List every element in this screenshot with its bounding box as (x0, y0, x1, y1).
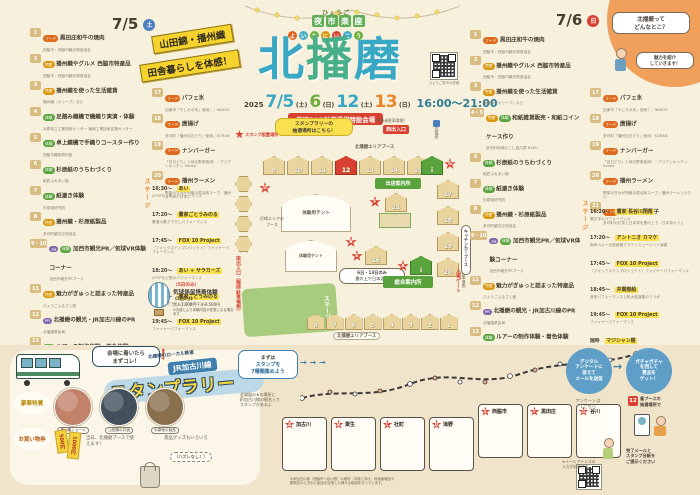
booth-list-item: 12 PR北播磨の観光・JR加古川線のPR 北播磨県民局 (470, 301, 582, 325)
category-badge: フード (603, 121, 618, 128)
prize-photos: 播州織ショール 山田錦のお酒 杉原紙の製品 (54, 388, 184, 434)
item-sub: 多可町観光交流協会 (43, 232, 148, 236)
booths-13-15: 131415 (359, 156, 429, 175)
prize-item: 播州織ショール (54, 388, 92, 434)
item-number: 18 (152, 114, 163, 123)
category-badge: フード (165, 121, 180, 128)
balloon-weather-note: ※天候により体験内容が変更になる場合あり (173, 308, 235, 317)
booth12-note-line: 抽選場所で (640, 402, 661, 408)
stage-row: 17:45～ FOX 10 Project （フォックステンプロジェクト）ファイ… (152, 227, 232, 255)
date-number: 7/5 (265, 92, 293, 112)
item-sub: 西脇市・西脇市観光物産協会 (483, 75, 582, 79)
experience-tent-2: 体験用テント (285, 240, 337, 272)
map-booth-tent: 4 (383, 314, 401, 330)
booth12-note: 12 番ブースの 抽選場所で (628, 396, 661, 408)
info-booth-tent-2: i (410, 256, 432, 275)
map-booth-tent: 10 (287, 156, 309, 175)
stage-row: 17:20～ アントニオ カマケ 南米ペルー伝統楽器でラテンミュージック演奏 (590, 224, 694, 247)
stamp-star-d: D (259, 182, 271, 194)
stamp-legend: スタンプ設置場所 (235, 130, 278, 139)
station-name: 滝野 (443, 421, 453, 428)
item-badges: フード (603, 141, 620, 160)
lottery-bubble: スタンプラリーの 抽選場所はこちら！ (275, 118, 353, 136)
item-sub: 西脇市・西脇市観光物産協会 (43, 48, 148, 52)
booth-21-tent: 21 (385, 193, 407, 212)
title-char: 北 (258, 32, 306, 86)
west-exit-label: 西出入口 (383, 125, 409, 134)
balloon-envelope (148, 282, 170, 308)
booth-list-item: 9・10 PR体験加西市観光PR／気球VR体験コーナー 加西市観光PRブース (30, 239, 148, 282)
category-badge: フード (603, 95, 618, 102)
item-sub: 播州織（オリーブ）など (483, 101, 582, 105)
stage-performer: あい + サラカーズ (177, 268, 222, 274)
category-badge: フード (483, 37, 498, 44)
item-badges: フード (165, 114, 182, 133)
item-badges: 体験 (43, 160, 56, 179)
venue-map: スタンプ設置場所 スタンプラリーの 抽選場所はこちら！ 北播磨エリアブース （関… (233, 118, 465, 348)
item-number: 4・5 (470, 108, 484, 117)
item-badges: フード (165, 141, 182, 160)
item-badges: PR (483, 301, 493, 320)
person-body (654, 426, 666, 436)
item-title: 黒田庄和牛の焼肉 (60, 35, 105, 41)
category-badge: フード (43, 35, 58, 42)
item-number: 7 (470, 179, 481, 188)
stage-performer: FOX 10 Project (615, 261, 659, 267)
item-sub: 加西市観光PRブース (489, 269, 582, 273)
mail-note-line: 入力が必要です (562, 465, 622, 470)
stage-time: 18:20～ (152, 269, 172, 274)
item-number: 2 (30, 54, 41, 63)
experience-tent-label: 体験用テント (299, 253, 323, 259)
brand-logo: 夜 市 楽 座 (312, 15, 365, 27)
item-badges: 特産 (483, 82, 496, 101)
experience-tent-label: 体験用テント (302, 210, 330, 216)
item-badges: フード (165, 88, 182, 107)
item-title: 播州ラーメン (620, 179, 653, 185)
item-title: 杉原紙のうちわづくり (56, 167, 112, 173)
stage-performer: あい (177, 186, 190, 192)
intro-question-line: 北播磨って (613, 15, 689, 23)
booth-list-item: 9・10 PR体験加西市観光PR／気球VR体験コーナー 加西市観光PRブース (470, 231, 582, 274)
date-dow: (日) (323, 100, 335, 109)
jr-support-note: ※JR加古川線（西脇市～谷川間）の維持・存続に向け、利用者増加や 駅周辺のにぎわ… (290, 477, 540, 486)
station-star-letter: C (383, 420, 393, 430)
charging-label: 充電所 (434, 127, 440, 139)
category-badge: PR (49, 246, 58, 252)
item-badges: フード (603, 114, 620, 133)
category-badge: 特産 (483, 89, 495, 96)
amagasaki-booth (235, 236, 252, 252)
stage-description: 書道の書き下ろしパフォーマンス (152, 220, 232, 224)
map-booth-tent: 9 (263, 156, 285, 175)
amagasaki-area-label: 尼崎エリアの ブース (255, 216, 289, 228)
train-wheel (24, 380, 30, 386)
category-badge: 体験 (499, 115, 511, 122)
booth-list-item: 12 PR北播磨の観光・JR加古川線のPR 北播磨県民局 (30, 310, 148, 334)
station-star-letter: B (334, 420, 344, 430)
item-title: 黒田庄和牛の焼肉 (500, 37, 545, 43)
item-badges: フード (603, 171, 620, 190)
map-booth-tent: 6 (345, 314, 363, 330)
station-name: 粟生 (345, 421, 355, 428)
category-badge: 特産 (43, 88, 55, 95)
step1-line: スタンプを (239, 361, 297, 368)
train-stripe (17, 372, 79, 376)
item-sub: 紙匠ふれあい館 (43, 179, 148, 183)
balloon-section: （5日のみ） 気球係留搭乗体験 《1回5分》 大人1,000円・小人500円 ※… (148, 282, 235, 317)
catch-banner-2: 田舎暮らしを体感！ (139, 49, 240, 82)
category-badge: 体験 (483, 334, 495, 341)
booth-list-item: 6 体験杉原紙のうちわづくり 紙匠ふれあい館 (30, 160, 148, 184)
map-booth-tent: 19 (437, 232, 459, 251)
coupon-label: お買い物券 (14, 428, 50, 450)
item-sub: 加東市「やしろの氷」使用！／INVIGO (603, 108, 694, 112)
item-number: 2 (470, 56, 481, 65)
map-booth-tent: 1 (440, 314, 458, 330)
qr-corner (578, 480, 586, 488)
booths-9-11: 91011 (263, 156, 333, 175)
item-number: 17 (590, 88, 601, 97)
map-booth-tent: 14 (383, 156, 405, 175)
tatami-mat (379, 213, 411, 228)
jr-note-line: 駅周辺のにぎわい創出を目指した様々な取組を行っています。 (290, 481, 540, 485)
category-badge: 体験 (43, 140, 55, 147)
stage-performer: 井関春絵 (615, 287, 638, 293)
flyer-page: ひょうご 夜 市 楽 座 よ い ち に い こ う 北播磨 ひょうご夜市の詳細… (0, 0, 700, 495)
item-sub: 加東市「やしろの氷」使用！／INVIGO (165, 108, 232, 112)
intro-answer-line: していきます！ (637, 61, 693, 67)
item-number: 6 (30, 160, 41, 169)
item-sub: 播州織（オリーブ）など (43, 100, 148, 104)
stage-time: 16:20～ (590, 210, 610, 215)
stage-description: 南米ペルー伝統楽器でラテンミュージック演奏 (590, 243, 694, 247)
step2-line: メールを送信 (575, 377, 603, 383)
map-booth-tent: 3 (402, 314, 420, 330)
booth-list-item: 8 特産播州織・杉原紙製品 多可町観光交流協会 (30, 212, 148, 236)
item-sub: 北播磨県民局 (43, 330, 148, 334)
final-instruction: 完了メールと スタンプ台紙を ご提示ください (626, 448, 694, 464)
stage-description: （フォックステンプロジェクト）ファイヤーパフォーマンス (152, 246, 232, 255)
stage-label-75: ステージ (142, 178, 151, 210)
item-title: ナンバーガー (182, 148, 216, 154)
stage-performer: アントニオ カマケ (615, 235, 659, 241)
intro-question-bubble: 北播磨って どんなとこ？ (612, 12, 690, 34)
item-number: 11 (470, 276, 481, 285)
item-badges: 体験 (483, 153, 496, 172)
item-title: 播州織やグルメ 西脇市特産品 (496, 63, 571, 69)
item-sub: 多可町「播州百日どり」使用／SORAN (165, 134, 232, 138)
item-sub: 「百日どり」と地元野菜使用！／アジアンキッチン Sanka (165, 160, 232, 169)
stage-row: 16:30～ あい J-POPなど歌のパフォーマンス (152, 175, 232, 198)
map-booth-tent: 8 (307, 314, 325, 330)
food-list-item: 17 フードパフェ氷 加東市「やしろの氷」使用！／INVIGO (152, 88, 232, 112)
stage-time: 17:20～ (152, 213, 172, 218)
item-number: 3 (470, 82, 481, 91)
category-badge: 特産 (43, 61, 55, 68)
item-badges: フード (603, 88, 620, 107)
step3-circle: ガチャガチャ を回して 賞品を ゲット！ (626, 348, 672, 394)
stage-row: 18:45～ 井関春絵 音楽パフォーマンスと和太鼓演奏のコラボ (590, 276, 694, 299)
item-number: 4 (30, 107, 41, 116)
booth-list-item: 1 フード黒田庄和牛の焼肉 西脇市・西脇市観光物産協会 (470, 30, 582, 54)
item-badges: フード (43, 28, 60, 47)
station-stamp-box: A 加古川 (282, 417, 327, 471)
prize-item: 杉原紙の製品 (146, 388, 184, 434)
train-body (16, 354, 80, 379)
stage-performer: 書家ごとうみのる (177, 212, 219, 218)
item-number: 8 (470, 205, 481, 214)
item-number: 5 (30, 133, 41, 142)
item-number: 18 (590, 114, 601, 123)
category-badge: フード (603, 148, 618, 155)
category-badge: 体験 (43, 193, 55, 200)
category-badge: 特産 (483, 283, 495, 290)
lottery-bubble-line: 抽選場所はこちら！ (276, 127, 352, 134)
category-badge: PR (483, 309, 492, 315)
booth-list-item: 2 特産播州織やグルメ 西脇市特産品 西脇市・西脇市観光物産協会 (470, 56, 582, 80)
person-head (604, 438, 614, 448)
date-number: 12 (336, 92, 359, 112)
station-stamp-box: G 谷川 (576, 404, 621, 458)
lottery-bubble-line: スタンプラリーの (276, 120, 352, 127)
item-title: ルアーの制作体験・着色体験 (496, 335, 568, 341)
category-badge: 体験 (60, 246, 72, 253)
stage-label-76: ステージ (580, 200, 589, 232)
guide-person-illustration (616, 48, 627, 71)
item-sub: 加西市観光PRブース (49, 277, 148, 281)
item-sub: 西脇市・西脇市観光物産協会 (483, 50, 582, 54)
station-stamp-box: D 滝野 (429, 417, 474, 471)
category-badge: 特産 (43, 219, 55, 226)
stage-time: 17:45～ (590, 262, 610, 267)
map-booth-tent: 7 (326, 314, 344, 330)
stage-performer: FOX 10 Project (177, 319, 221, 325)
item-sub: ひょうごふるさと館 (43, 304, 148, 308)
day-badge-76: 7/6 日 (556, 10, 599, 29)
qr-corner (432, 70, 440, 78)
legend-text: スタンプ設置場所 (245, 132, 278, 138)
grand-prize-label: 豪華特賞 (14, 392, 50, 414)
train-wheel (64, 380, 70, 386)
step1-line: 7種類集めよう (239, 368, 297, 375)
prize-item: 山田錦のお酒 (100, 388, 138, 434)
qr-caption: ひょうご夜市の詳細 (424, 80, 464, 85)
item-title: 杉原紙のうちわづくり (496, 160, 552, 166)
day-dow-badge: 日 (587, 15, 599, 27)
item-title: 唐揚げ (182, 122, 199, 128)
catch-banner-1: 山田錦・播州織 (151, 24, 233, 54)
station-star-letter: E (481, 407, 491, 417)
booth-col-right: 17181920 (437, 180, 459, 277)
item-title: 足踏み織機で機織り実演・体験 (56, 114, 134, 120)
stamp-star-f: F (369, 196, 381, 208)
station-name: 社町 (394, 421, 404, 428)
booth-list-item: 3 特産播州織を使った生活雑貨 播州織（オリーブ）など (30, 81, 148, 105)
stage-time: 17:20～ (590, 236, 610, 241)
step2-circle: デジタル アンケートに 答えて メールを送信 (566, 348, 612, 394)
station-stamp-box: E 西脇市 (478, 404, 523, 458)
item-badges: 体験 (43, 133, 56, 152)
station-stamp-box: F 黒田庄 (527, 404, 572, 458)
stage-description: ファイヤーパフォーマンス (590, 320, 694, 324)
stage-description: J-POPなど歌のパフォーマンス (152, 276, 232, 280)
charging-station: 充電所 (433, 120, 440, 139)
item-sub: 杉原紙研究所 (43, 206, 148, 210)
item-sub: 西脇市・西脇市観光物産協会 (43, 74, 148, 78)
event-title: 北播磨 (258, 36, 402, 82)
event-qr-code (430, 52, 458, 80)
station-star-letter: D (432, 420, 442, 430)
goods-note: 景品グッズもいろいろ (164, 436, 220, 442)
item-badges: 特産 (43, 284, 56, 303)
station-stamp-box: B 粟生 (331, 417, 376, 471)
balloon-illustration (148, 282, 170, 317)
category-badge: 体験 (43, 167, 55, 174)
area-label-top: 北播磨エリアブース (355, 144, 394, 150)
item-title: 播州織・杉原紙製品 (496, 212, 546, 218)
station-star-letter: A (285, 420, 295, 430)
item-sub: 杉原紙研究所 (483, 198, 582, 202)
prize-caption: 杉原紙の製品 (151, 427, 179, 434)
item-number: 13 (470, 327, 481, 336)
stage-description: 音楽パフォーマンスと和太鼓演奏のコラボ (590, 295, 694, 299)
step1-line: まずは (239, 354, 297, 361)
amagasaki-booth (235, 176, 252, 192)
step1-bubble: まずは スタンプを 7種類集めよう (238, 350, 298, 379)
item-badges: PR (43, 310, 53, 329)
station-name: 西脇市 (492, 408, 507, 415)
item-sub: 多可町「播州百日どり」使用／SORAN (603, 134, 694, 138)
item-sub: 兵庫県立工業技術センター 繊維工業技術支援センター (43, 127, 148, 131)
category-badge: フード (603, 178, 618, 185)
parking-note: （関係者駐車場側） (373, 118, 407, 124)
final-note-line: ご提示ください (626, 459, 694, 464)
item-number: 12 (470, 301, 481, 310)
food-list-item: 18 フード唐揚げ 多可町「播州百日どり」使用／SORAN (590, 114, 694, 138)
category-badge: 特産 (43, 291, 55, 298)
intro-question-line: どんなとこ？ (613, 23, 689, 31)
stage-row: 16:20～ 書家 長谷川翔南 墨文字のパフォーマンス (590, 198, 694, 221)
stage-schedule-76: 16:20～ 書家 長谷川翔南 墨文字のパフォーマンス 17:20～ アントニオ… (590, 198, 694, 353)
item-title: 播州織を使った生活雑貨 (56, 88, 118, 94)
booth-info-office: 出店案内所 (375, 178, 421, 189)
item-number: 9・10 (470, 231, 487, 240)
brand-char: 座 (353, 15, 365, 27)
booth-list-item: 3 特産播州織を使った生活雑貨 播州織（オリーブ）など (470, 82, 582, 106)
area-label-bottom: 北播磨エリアブース (333, 332, 380, 340)
booth-list-item: 1 フード黒田庄和牛の焼肉 西脇市・西脇市観光物産協会 (30, 28, 148, 52)
train-window (49, 358, 61, 368)
category-badge: 体験 (500, 238, 512, 245)
category-badge: 体験 (43, 114, 55, 121)
charging-icon (433, 120, 440, 127)
item-title: 唐揚げ (620, 122, 637, 128)
item-badges: 特産 (43, 81, 56, 100)
item-badges: 体験 (43, 186, 56, 205)
date-number: 13 (374, 92, 397, 112)
day-date: 7/6 (556, 11, 582, 29)
category-badge: PR (43, 318, 52, 324)
item-sub: 多可町観光交流協会 (483, 224, 582, 228)
coupon-note: 当日、北播磨ブースで使えます！ (86, 436, 138, 447)
brand-char: 夜 (312, 15, 324, 27)
eco-bag-illustration (140, 466, 160, 488)
item-number: 7 (30, 186, 41, 195)
item-title: 卓上織機で手織りコースター作り (56, 141, 140, 147)
stamp-star-g: G (444, 158, 456, 170)
booth-row-top: 91011 12 131415 (263, 156, 429, 175)
item-number: 6 (470, 153, 481, 162)
item-title: 播州織やグルメ 西脇市特産品 (56, 62, 131, 68)
date-dow: (土) (361, 100, 373, 109)
item-badges: 特産 (483, 205, 496, 224)
date-dow: (日) (399, 100, 411, 109)
item-badges: 体験 (483, 179, 496, 198)
stage-time: 19:45～ (152, 320, 172, 325)
food-list-item: 20 フード播州ラーメン 野菜の甘みが特徴の醤油系スープ／播州ラーメンひすい (590, 171, 694, 199)
item-number: 19 (152, 141, 163, 150)
item-badges: 特産体験 (486, 108, 512, 127)
booth-list-item: 11 特産魅力がぎゅっと詰まった特産品 ひょうごふるさと館 (470, 276, 582, 300)
food-list-item: 19 フードナンバーガー 「百日どり」と地元野菜使用！／アジアンキッチン San… (152, 141, 232, 169)
station-star-letter: F (530, 407, 540, 417)
amagasaki-label-line: ブース (255, 222, 289, 228)
person-head (616, 48, 627, 59)
map-booth-tent: 18 (437, 206, 459, 225)
item-title: 紙漉き体験 (56, 193, 84, 199)
stage-description: J-POPなど歌のパフォーマンス (152, 194, 232, 198)
general-info-center: 総合案内所 (383, 276, 433, 288)
item-badges: PR体験 (489, 231, 513, 250)
item-title: パフェ氷 (182, 95, 204, 101)
map-booth-tent: 2 (421, 314, 439, 330)
station-stamp-box: C 社町 (380, 417, 425, 471)
south-exit-label: 南出入口（臨時駐車場側） (234, 256, 241, 344)
intro-answer-bubble: 魅力を紹介 していきます！ (636, 52, 694, 69)
map-booth-tent: 13 (359, 156, 381, 175)
item-sub: 紙匠ふれあい館 (483, 172, 582, 176)
stage-description: （フォックステンプロジェクト）ファイヤーパフォーマンス (590, 269, 694, 273)
balloon-basket (154, 309, 164, 316)
category-badge: 特産 (483, 63, 495, 70)
item-badges: フード (483, 30, 500, 49)
booth-list-item: 7 体験紙漉き体験 杉原紙研究所 (30, 186, 148, 210)
item-sub: 北播磨県民局 (483, 321, 582, 325)
booth-row-bottom: 87654321 (307, 314, 458, 330)
category-badge: フード (165, 148, 180, 155)
station-name: 黒田庄 (541, 408, 556, 415)
booth-list-item: 2 特産播州織やグルメ 西脇市特産品 西脇市・西脇市観光物産協会 (30, 54, 148, 78)
person-body (603, 448, 613, 459)
category-badge: PR (489, 238, 498, 244)
item-badges: 特産 (483, 276, 496, 295)
mail-required-note: ※メールアドレスの 入力が必要です (562, 460, 622, 469)
item-sub: ひょうごふるさと館 (483, 295, 582, 299)
brand-char: 市 (326, 15, 338, 27)
gacha-machine-illustration (634, 414, 650, 436)
big-arrow: → (613, 360, 622, 373)
train-wheels (24, 380, 80, 386)
qr-note-line: ↓こちら (566, 404, 610, 410)
stage-row: 19:45～ FOX 10 Project ファイヤーパフォーマンス (590, 301, 694, 324)
prize-photo (100, 388, 138, 426)
year: 2025 (244, 101, 263, 109)
lottery-booth-tent: 12 (335, 156, 357, 175)
no-lose-note: （ハズレなし！） (170, 452, 212, 462)
item-sub: 「百日どり」と地元野菜使用！／アジアンキッチン Sanka (603, 160, 694, 169)
item-number: 19 (590, 141, 601, 150)
